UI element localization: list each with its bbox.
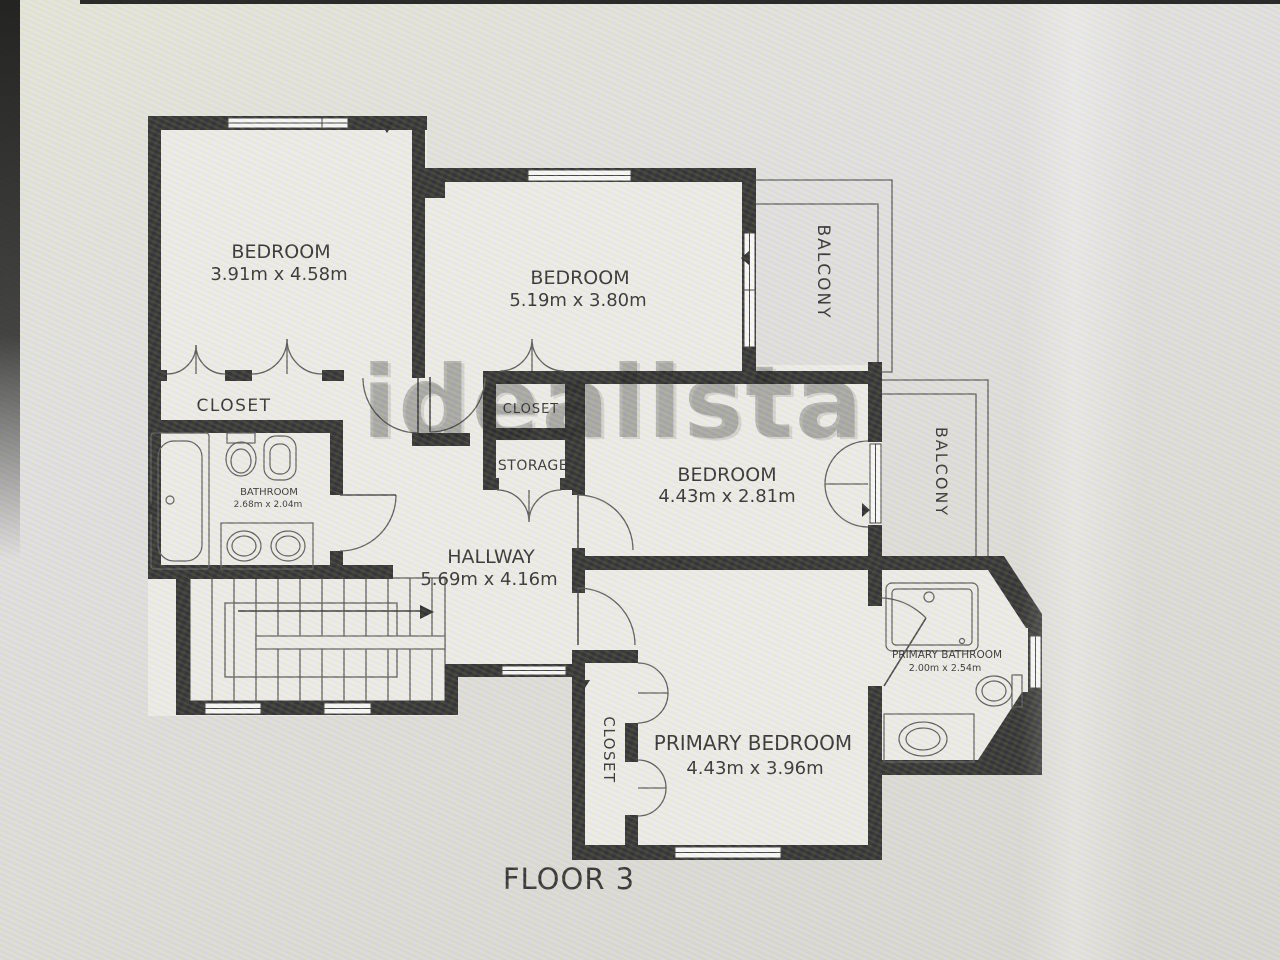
room-label-balcony-right: BALCONY bbox=[932, 427, 951, 517]
room-dims-hallway: 5.69m x 4.16m bbox=[420, 569, 557, 590]
room-dims-primary-bedroom: 4.43m x 3.96m bbox=[686, 758, 823, 779]
floor-title: FLOOR 3 bbox=[503, 862, 635, 896]
room-label-hallway: HALLWAY bbox=[447, 546, 535, 568]
photo-edge-left bbox=[0, 0, 20, 560]
room-label-closet-center: CLOSET bbox=[503, 402, 560, 417]
room-dims-bedroom-1: 3.91m x 4.58m bbox=[210, 264, 347, 285]
room-dims-bathroom: 2.68m x 2.04m bbox=[234, 500, 303, 510]
room-label-closet-primary: CLOSET bbox=[600, 716, 618, 783]
room-label-closet-bedroom-1: CLOSET bbox=[196, 396, 271, 416]
balcony-right-inner-outline bbox=[882, 394, 976, 568]
room-label-bathroom: BATHROOM bbox=[240, 487, 298, 498]
room-label-bedroom-3: BEDROOM bbox=[677, 464, 776, 486]
room-label-primary-bathroom: PRIMARY BATHROOM bbox=[892, 649, 1002, 661]
room-label-balcony-top: BALCONY bbox=[813, 224, 833, 319]
room-dims-primary-bathroom: 2.00m x 2.54m bbox=[909, 663, 981, 674]
room-dims-bedroom-2: 5.19m x 3.80m bbox=[509, 290, 646, 311]
room-label-bedroom-2: BEDROOM bbox=[530, 267, 629, 289]
room-dims-bedroom-3: 4.43m x 2.81m bbox=[658, 486, 795, 507]
floorplan-photo: BEDROOM 3.91m x 4.58m BEDROOM 5.19m x 3.… bbox=[0, 0, 1280, 960]
room-label-storage: STORAGE bbox=[498, 458, 568, 474]
floorplan-drawing: BEDROOM 3.91m x 4.58m BEDROOM 5.19m x 3.… bbox=[0, 0, 1280, 960]
room-label-primary-bedroom: PRIMARY BEDROOM bbox=[654, 731, 852, 755]
room-floor-primary-bedroom bbox=[572, 556, 882, 860]
stair-landing bbox=[256, 636, 445, 649]
room-label-bedroom-1: BEDROOM bbox=[231, 241, 330, 263]
photo-edge-top bbox=[80, 0, 1280, 4]
